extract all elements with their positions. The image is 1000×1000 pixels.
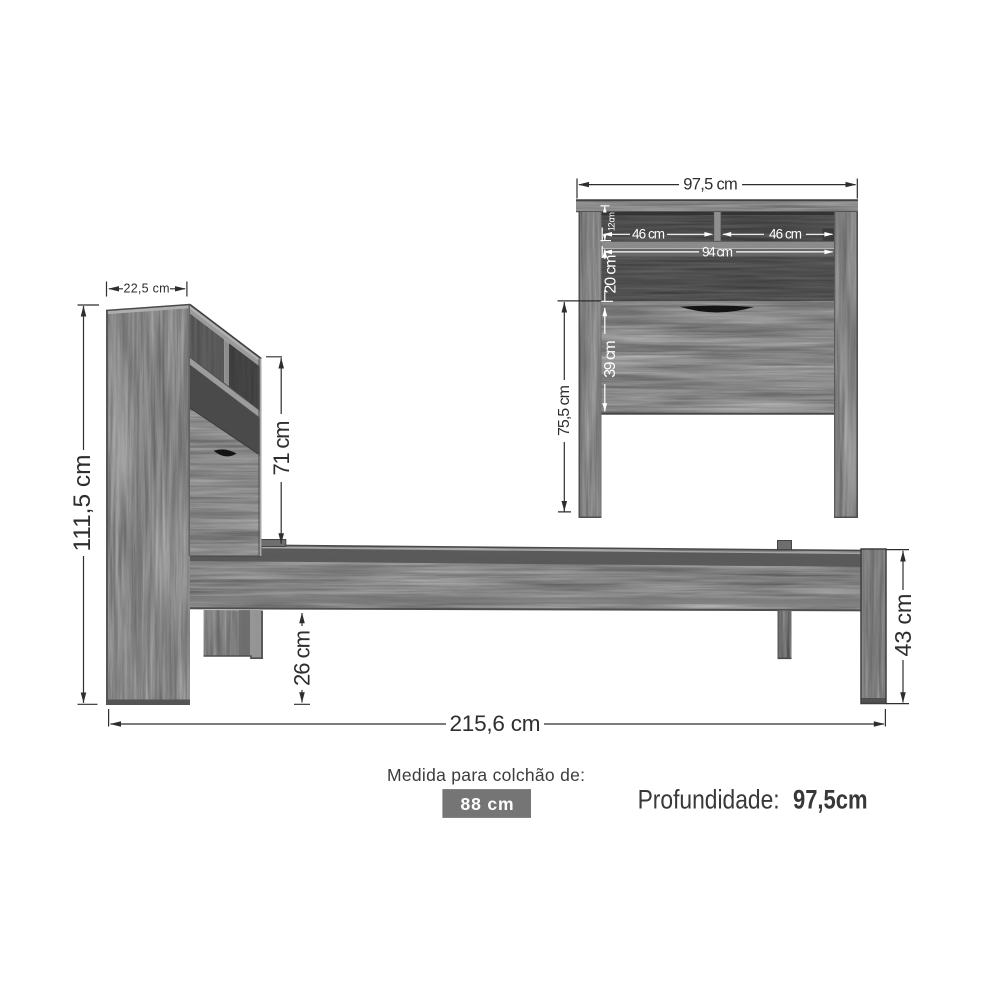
svg-text:22,5 cm: 22,5 cm [124,282,170,296]
svg-text:71 cm: 71 cm [269,421,294,476]
svg-text:88 cm: 88 cm [461,794,514,814]
svg-text:215,6 cm: 215,6 cm [450,711,541,736]
svg-text:26 cm: 26 cm [290,630,315,686]
svg-text:97,5 cm: 97,5 cm [683,175,738,193]
svg-text:75,5 cm: 75,5 cm [556,385,573,436]
svg-text:12 cm: 12 cm [607,212,617,231]
svg-text:94 cm: 94 cm [702,244,733,259]
svg-text:111,5 cm: 111,5 cm [69,455,96,552]
svg-text:43 cm: 43 cm [890,594,916,657]
svg-text:39 cm: 39 cm [602,340,619,378]
svg-text:46 cm: 46 cm [769,227,802,242]
svg-text:Profundidade:: Profundidade: [638,784,780,814]
svg-text:Medida para colchão de:: Medida para colchão de: [387,765,585,785]
svg-text:46 cm: 46 cm [632,227,665,242]
svg-text:97,5cm: 97,5cm [793,784,868,814]
svg-text:20 cm: 20 cm [602,255,619,294]
